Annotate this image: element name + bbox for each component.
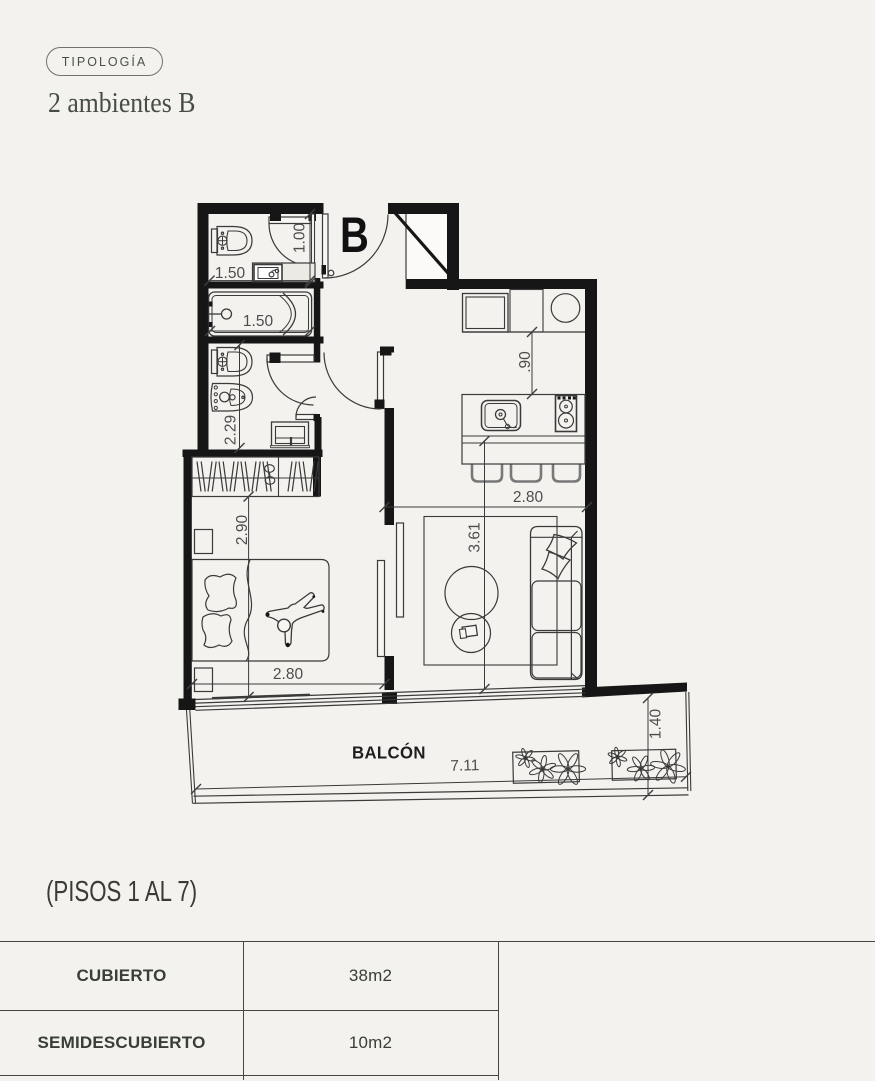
svg-text:1.40: 1.40 [648,709,665,740]
svg-text:2.80: 2.80 [513,489,544,506]
svg-text:7.11: 7.11 [450,757,479,775]
svg-text:1.00: 1.00 [292,223,309,254]
svg-text:2.90: 2.90 [234,515,251,546]
svg-text:3.61: 3.61 [467,522,484,552]
svg-text:1.50: 1.50 [243,313,274,330]
svg-text:2.80: 2.80 [273,666,304,683]
svg-text:B: B [340,207,369,263]
svg-text:2.29: 2.29 [223,415,240,445]
svg-text:.90: .90 [517,351,534,373]
svg-text:1.50: 1.50 [215,265,246,282]
svg-text:BALCÓN: BALCÓN [352,742,426,763]
